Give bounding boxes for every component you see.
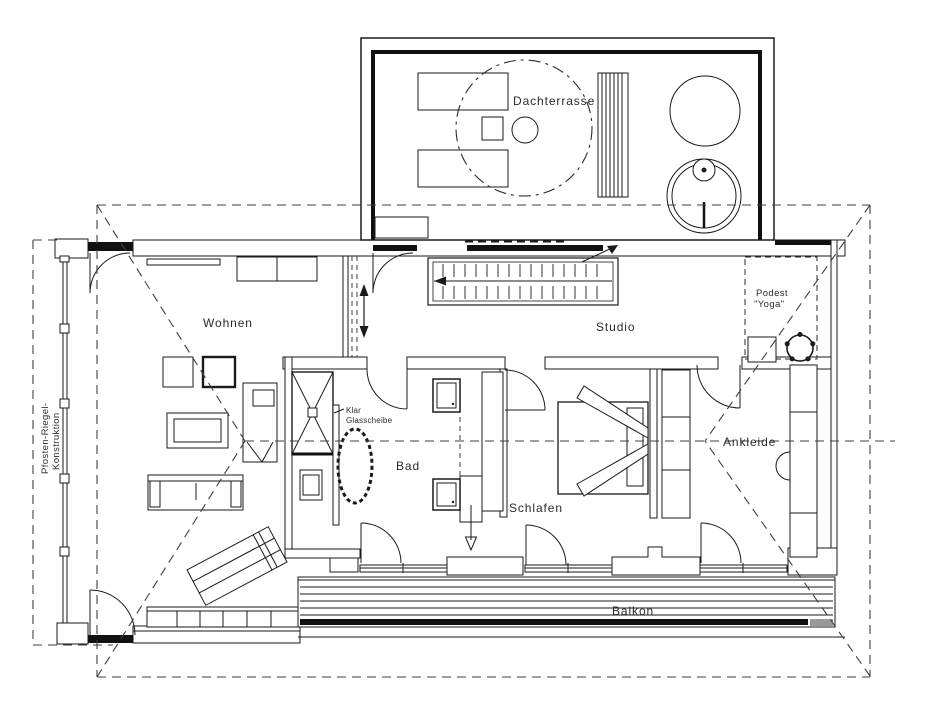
south-wall-living xyxy=(133,626,300,643)
sideboard-top xyxy=(237,257,317,281)
washbasin xyxy=(433,379,460,412)
wall-bath-west xyxy=(285,357,292,553)
balcony-corner-gray xyxy=(810,619,833,626)
highboard xyxy=(243,383,277,462)
facade-mullion xyxy=(60,324,69,333)
chaise-longue xyxy=(187,527,287,606)
label-glass-2: Glasscheibe xyxy=(346,416,393,425)
wall-bath-north-1 xyxy=(283,357,367,369)
wall-bath-south xyxy=(285,549,360,558)
bath-door xyxy=(367,369,407,409)
east-wall xyxy=(831,240,837,557)
hall-door xyxy=(373,253,413,293)
sofa xyxy=(148,475,243,510)
podest-stool xyxy=(748,337,776,362)
podest-window-band xyxy=(775,240,833,245)
wall-pier-notched xyxy=(612,547,700,575)
terrace-tree xyxy=(670,76,740,146)
wall-bath-north-2 xyxy=(407,357,505,369)
label-dachterrasse: Dachterrasse xyxy=(513,94,595,108)
facade-corner-block xyxy=(57,623,88,644)
terrace-lounger xyxy=(418,73,508,110)
south-bedroom-wall xyxy=(330,547,837,575)
wall-shelf xyxy=(147,259,220,265)
stair-landing xyxy=(375,217,428,238)
floor-plan-drawing: Dachterrasse Wohnen Studio Bad Schlafen … xyxy=(0,0,942,721)
wall-bedroom-north xyxy=(545,357,718,369)
bedroom-wardrobe xyxy=(662,370,690,518)
entrance-door xyxy=(90,253,130,293)
facade-mullion xyxy=(60,399,69,408)
bathtub xyxy=(338,429,372,503)
hall-door-glazing xyxy=(373,245,417,251)
label-studio: Studio xyxy=(596,320,635,334)
glass-partition xyxy=(333,405,339,525)
wc xyxy=(300,470,322,500)
label-bad: Bad xyxy=(396,459,420,473)
south-door-glazing xyxy=(88,635,133,643)
coffee-table xyxy=(167,413,228,448)
label-ankleide: Ankleide xyxy=(723,435,776,449)
ankleide-wardrobe xyxy=(776,365,817,557)
label-facade-2: Konstruktion xyxy=(51,412,62,470)
balcony xyxy=(298,577,835,627)
label-glass-1: Klar xyxy=(346,406,361,415)
bedroom-door xyxy=(505,370,545,410)
wall-pier xyxy=(447,557,523,575)
shower xyxy=(292,372,333,454)
entrance-pillar xyxy=(55,239,88,258)
armchair-bold xyxy=(203,357,235,387)
terrace-slat-bench xyxy=(598,73,628,197)
entrance-door-glazing xyxy=(88,242,133,251)
washbasin xyxy=(433,479,460,510)
facade-mullion xyxy=(60,474,69,483)
bedroom-balcony-door xyxy=(526,525,566,565)
bedroom-furniture xyxy=(558,365,817,557)
label-balkon: Balkon xyxy=(612,604,654,618)
terrace-stool xyxy=(512,117,538,143)
terrace-side-table xyxy=(482,117,503,140)
wall-pier xyxy=(330,557,358,572)
wardrobe-handle xyxy=(776,452,790,480)
label-facade-1: Pfosten-Riegel- xyxy=(40,403,51,474)
ankleide-door xyxy=(697,365,740,408)
stair-window-band xyxy=(467,245,603,251)
ankleide-balcony-door xyxy=(701,523,741,563)
label-yoga: "Yoga" xyxy=(754,299,784,310)
facade-mullion xyxy=(60,547,69,556)
bath-balcony-door xyxy=(361,523,401,563)
label-schlafen: Schlafen xyxy=(509,501,563,515)
wall-headboard xyxy=(650,369,657,518)
floor-plan-page: Dachterrasse Wohnen Studio Bad Schlafen … xyxy=(0,0,942,721)
armchair xyxy=(163,357,193,387)
sideboard-bottom xyxy=(147,607,298,627)
bed xyxy=(558,386,648,496)
balcony-edge xyxy=(300,619,808,625)
label-podest: Podest xyxy=(756,288,788,299)
roof-terrace xyxy=(361,38,774,241)
terrace-lounger xyxy=(418,150,508,187)
passage-arrow xyxy=(360,284,369,338)
facade-mullion xyxy=(60,256,69,262)
label-wohnen: Wohnen xyxy=(203,316,253,330)
